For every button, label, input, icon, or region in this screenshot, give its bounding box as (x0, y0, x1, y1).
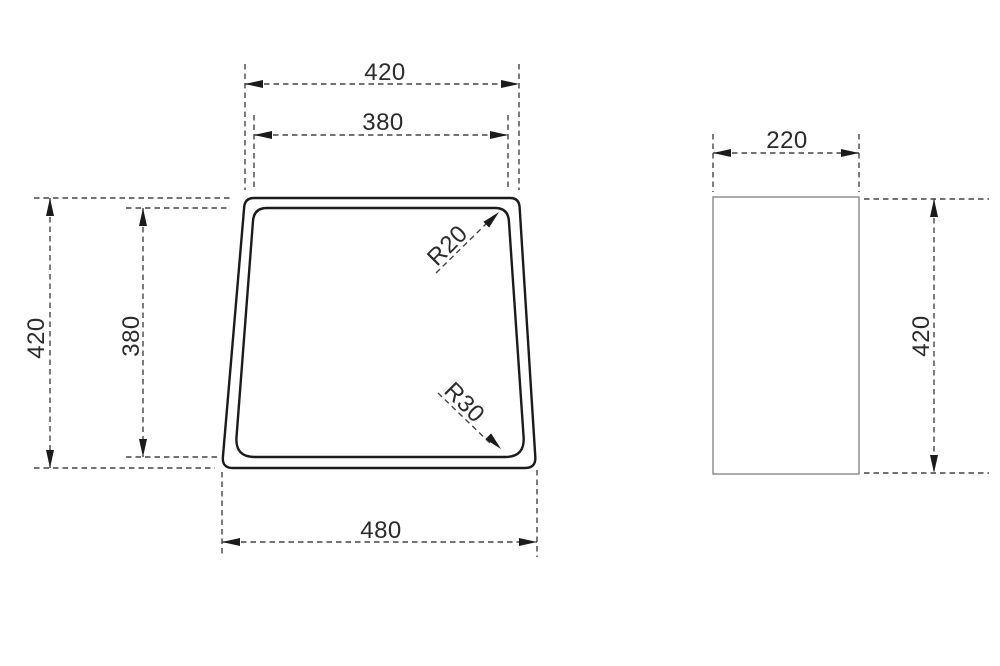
label-radius-r30: R30 (439, 377, 490, 428)
arrowhead-top-outer-left (245, 80, 263, 88)
arrowhead-side-height-top (930, 199, 938, 217)
arrowhead-left-outer-bottom (46, 450, 54, 468)
label-side-width: 220 (766, 127, 808, 154)
arrowhead-left-outer-top (46, 198, 54, 216)
label-bottom-width: 480 (360, 517, 402, 544)
arrowhead-bottom-left (222, 538, 240, 546)
label-top-width-outer: 420 (364, 59, 406, 86)
bowl-outer-outline (223, 198, 536, 468)
label-left-height-inner: 380 (118, 315, 145, 357)
label-side-height: 420 (908, 315, 935, 357)
arrowhead-top-inner-right (490, 131, 508, 139)
side-profile-outline (713, 197, 859, 474)
arrowhead-side-width-right (841, 149, 859, 157)
drawing-canvas: 420 380 480 420 380 R20 R30 220 420 (0, 0, 1000, 666)
arrowhead-top-outer-right (501, 80, 519, 88)
arrowhead-side-height-bottom (930, 455, 938, 473)
technical-drawing: 420 380 480 420 380 R20 R30 220 420 (0, 0, 1000, 666)
label-left-height-outer: 420 (23, 317, 50, 359)
arrowhead-left-inner-top (139, 208, 147, 226)
arrowhead-top-inner-left (254, 131, 272, 139)
bowl-inner-outline (236, 208, 523, 457)
arrowhead-side-width-left (713, 149, 731, 157)
arrowhead-r20 (483, 212, 499, 228)
top-view (223, 198, 536, 468)
label-radius-r20: R20 (422, 220, 473, 271)
side-view (713, 197, 859, 474)
label-top-width-inner: 380 (362, 109, 404, 136)
arrowhead-bottom-right (519, 538, 537, 546)
arrowhead-left-inner-bottom (139, 439, 147, 457)
